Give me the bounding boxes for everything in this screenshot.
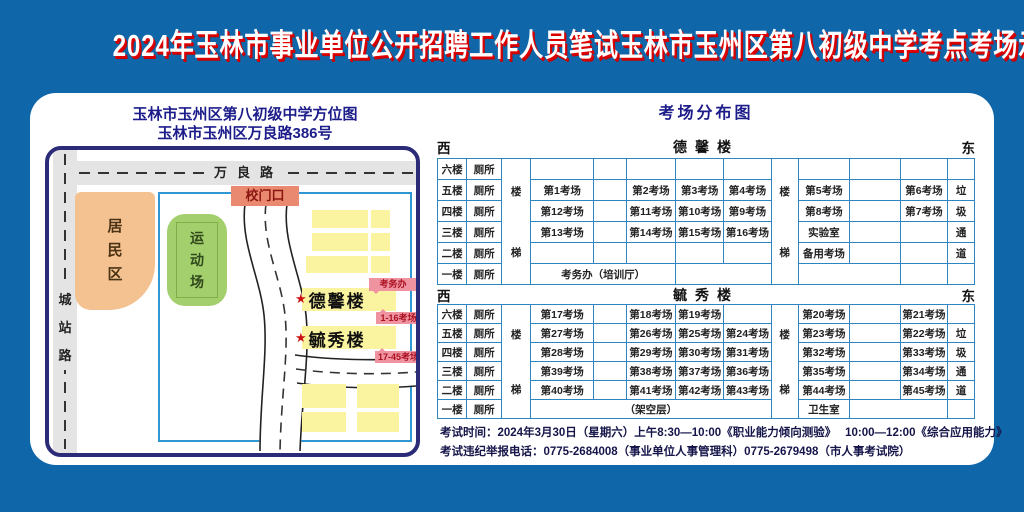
room-cell: 第21考场 xyxy=(900,305,948,324)
yuxiu-building-name: ★ 毓秀楼 xyxy=(295,327,366,349)
west-label: 西 xyxy=(437,137,451,157)
room-cell: 第42考场 xyxy=(676,381,724,400)
exam-notes: 考试时间：2024年3月30日（星期六）上午8:30—10:00《职业能力倾向测… xyxy=(440,424,988,462)
room-cell: 第40考场 xyxy=(531,381,594,400)
room-cell: 第36考场 xyxy=(724,362,771,381)
building-block xyxy=(302,384,346,408)
room-cell: 第17考场 xyxy=(531,305,594,324)
room-cell: 第29考场 xyxy=(626,343,675,362)
building-block xyxy=(357,384,399,408)
empty-cell xyxy=(850,400,948,419)
room-cell: 道 xyxy=(948,243,975,264)
room-cell: 第23考场 xyxy=(798,324,850,343)
room-cell: 第7考场 xyxy=(900,201,948,222)
room-cell: 一楼 xyxy=(438,400,467,419)
room-cell: 第3考场 xyxy=(676,180,724,201)
empty-cell xyxy=(676,159,724,180)
room-cell: 垃 xyxy=(948,180,975,201)
room-cell: 圾 xyxy=(948,201,975,222)
room-cell: 第9考场 xyxy=(724,201,771,222)
room-cell: 厕所 xyxy=(467,222,502,243)
map-title-line1: 玉林市玉州区第八初级中学方位图 xyxy=(60,103,430,124)
room-cell: 楼梯 xyxy=(501,159,530,285)
room-cell: 第12考场 xyxy=(531,201,594,222)
room-cell: （架空层） xyxy=(531,400,771,419)
wanliang-road-label: 万良路 xyxy=(209,163,288,183)
building-block xyxy=(371,233,390,251)
room-cell: 第16考场 xyxy=(724,222,771,243)
empty-cell xyxy=(850,201,900,222)
room-cell: 通 xyxy=(948,362,975,381)
empty-cell xyxy=(594,362,627,381)
empty-cell xyxy=(850,305,900,324)
room-cell: 二楼 xyxy=(438,243,467,264)
room-cell: 第26考场 xyxy=(626,324,675,343)
room-cell: 第45考场 xyxy=(900,381,948,400)
dexin-name: 德馨楼 xyxy=(451,137,962,157)
page-title: 2024年玉林市事业单位公开招聘工作人员笔试玉林市玉州区第八初级中学考点考场示意… xyxy=(113,20,912,65)
room-cell: 第27考场 xyxy=(531,324,594,343)
room-cell: 第5考场 xyxy=(798,180,850,201)
map-address-line2: 玉林市玉州区万良路386号 xyxy=(60,122,430,143)
room-cell: 四楼 xyxy=(438,343,467,362)
rooms-17-45-tag: 17-45考场 xyxy=(375,351,420,363)
building-block xyxy=(312,210,368,228)
rooms-1-16-tag: 1-16考场 xyxy=(376,312,420,324)
room-cell: 第19考场 xyxy=(676,305,724,324)
room-cell: 六楼 xyxy=(438,305,467,324)
room-cell: 二楼 xyxy=(438,381,467,400)
empty-cell xyxy=(676,243,724,264)
room-cell: 一楼 xyxy=(438,264,467,285)
room-cell: 第8考场 xyxy=(798,201,850,222)
room-cell: 第1考场 xyxy=(531,180,594,201)
empty-cell xyxy=(626,243,675,264)
empty-cell xyxy=(594,201,627,222)
room-cell: 通 xyxy=(948,222,975,243)
exam-time-line: 考试时间：2024年3月30日（星期六）上午8:30—10:00《职业能力倾向测… xyxy=(440,424,988,443)
room-cell: 第6考场 xyxy=(900,180,948,201)
empty-cell xyxy=(798,264,900,285)
empty-cell xyxy=(594,180,627,201)
empty-cell xyxy=(850,222,900,243)
room-cell: 三楼 xyxy=(438,362,467,381)
empty-cell xyxy=(900,222,948,243)
room-cell: 考务办（培训厅） xyxy=(531,264,676,285)
building-block xyxy=(306,256,368,273)
empty-cell xyxy=(850,324,900,343)
room-cell: 第18考场 xyxy=(626,305,675,324)
yuxiu-room-table: 六楼厕所楼梯第17考场第18考场第19考场楼梯第20考场第21考场五楼厕所第27… xyxy=(437,304,975,419)
chengzhan-road-label: 城站路 xyxy=(56,286,74,370)
empty-cell xyxy=(531,159,594,180)
room-cell: 第28考场 xyxy=(531,343,594,362)
room-cell: 第2考场 xyxy=(626,180,675,201)
empty-cell xyxy=(850,159,900,180)
room-cell: 四楼 xyxy=(438,201,467,222)
exam-office-tag: 考务办 xyxy=(369,278,417,291)
room-cell: 第37考场 xyxy=(676,362,724,381)
room-cell: 厕所 xyxy=(467,243,502,264)
room-cell: 第10考场 xyxy=(676,201,724,222)
building-block xyxy=(312,233,368,251)
room-cell: 备用考场 xyxy=(798,243,850,264)
empty-cell xyxy=(798,159,850,180)
room-cell: 第20考场 xyxy=(798,305,850,324)
room-cell: 第31考场 xyxy=(724,343,771,362)
empty-cell xyxy=(594,243,627,264)
room-cell: 五楼 xyxy=(438,324,467,343)
room-cell: 厕所 xyxy=(467,324,502,343)
room-cell: 第41考场 xyxy=(626,381,675,400)
room-cell: 第39考场 xyxy=(531,362,594,381)
room-cell: 第38考场 xyxy=(626,362,675,381)
yuxiu-table-header: 西 毓秀楼 东 xyxy=(437,286,975,303)
empty-cell xyxy=(900,264,948,285)
empty-cell xyxy=(594,222,627,243)
empty-cell xyxy=(948,400,975,419)
room-cell: 六楼 xyxy=(438,159,467,180)
empty-cell xyxy=(850,362,900,381)
room-cell: 第15考场 xyxy=(676,222,724,243)
empty-cell xyxy=(724,305,771,324)
empty-cell xyxy=(900,243,948,264)
room-cell: 楼梯 xyxy=(771,159,798,285)
west-label: 西 xyxy=(437,285,451,305)
room-cell: 第11考场 xyxy=(626,201,675,222)
empty-cell xyxy=(724,243,771,264)
dexin-table-header: 西 德馨楼 东 xyxy=(437,138,975,155)
room-cell: 第33考场 xyxy=(900,343,948,362)
campus-map: 居民区 运动场 万良路 城站路 校门口 ★ 德馨楼 ★ xyxy=(45,146,420,457)
room-cell: 厕所 xyxy=(467,362,502,381)
room-cell: 垃 xyxy=(948,324,975,343)
star-icon: ★ xyxy=(295,291,307,307)
empty-cell xyxy=(900,159,948,180)
star-icon: ★ xyxy=(295,330,307,346)
room-cell: 厕所 xyxy=(467,201,502,222)
empty-cell xyxy=(948,159,975,180)
room-cell: 第30考场 xyxy=(676,343,724,362)
empty-cell xyxy=(724,159,771,180)
empty-cell xyxy=(594,324,627,343)
empty-cell xyxy=(594,159,627,180)
empty-cell xyxy=(850,343,900,362)
empty-cell xyxy=(594,305,627,324)
room-cell: 厕所 xyxy=(467,381,502,400)
room-cell: 第22考场 xyxy=(900,324,948,343)
empty-cell xyxy=(626,159,675,180)
room-cell: 实验室 xyxy=(798,222,850,243)
room-cell: 第13考场 xyxy=(531,222,594,243)
room-cell: 第35考场 xyxy=(798,362,850,381)
room-cell: 第44考场 xyxy=(798,381,850,400)
building-block xyxy=(371,210,390,228)
room-cell: 厕所 xyxy=(467,305,502,324)
room-cell: 厕所 xyxy=(467,343,502,362)
room-cell: 道 xyxy=(948,381,975,400)
empty-cell xyxy=(531,243,594,264)
room-cell: 三楼 xyxy=(438,222,467,243)
room-cell: 圾 xyxy=(948,343,975,362)
room-cell: 第14考场 xyxy=(626,222,675,243)
school-gate-label: 校门口 xyxy=(231,186,299,206)
building-block xyxy=(357,412,399,432)
east-label: 东 xyxy=(962,285,976,305)
empty-cell xyxy=(676,264,771,285)
empty-cell xyxy=(948,305,975,324)
building-block xyxy=(302,412,346,432)
yuxiu-name: 毓秀楼 xyxy=(451,285,962,305)
room-cell: 第32考场 xyxy=(798,343,850,362)
room-cell: 第43考场 xyxy=(724,381,771,400)
room-cell: 第24考场 xyxy=(724,324,771,343)
dexin-building-name: ★ 德馨楼 xyxy=(295,288,366,310)
room-cell: 厕所 xyxy=(467,159,502,180)
room-cell: 厕所 xyxy=(467,400,502,419)
empty-cell xyxy=(850,180,900,201)
empty-cell xyxy=(948,264,975,285)
room-cell: 卫生室 xyxy=(798,400,850,419)
empty-cell xyxy=(594,381,627,400)
east-label: 东 xyxy=(962,137,976,157)
room-cell: 楼梯 xyxy=(771,305,798,419)
report-phone-line: 考试违纪举报电话：0775-2684008（事业单位人事管理科）0775-267… xyxy=(440,443,988,462)
room-cell: 第25考场 xyxy=(676,324,724,343)
empty-cell xyxy=(850,381,900,400)
distribution-title: 考场分布图 xyxy=(437,99,975,123)
empty-cell xyxy=(850,243,900,264)
room-cell: 第34考场 xyxy=(900,362,948,381)
room-cell: 厕所 xyxy=(467,180,502,201)
room-cell: 五楼 xyxy=(438,180,467,201)
building-block xyxy=(371,256,390,273)
room-cell: 第4考场 xyxy=(724,180,771,201)
room-cell: 楼梯 xyxy=(501,305,530,419)
room-cell: 厕所 xyxy=(467,264,502,285)
dexin-room-table: 六楼厕所楼梯楼梯五楼厕所第1考场第2考场第3考场第4考场第5考场第6考场垃四楼厕… xyxy=(437,158,975,285)
empty-cell xyxy=(594,343,627,362)
